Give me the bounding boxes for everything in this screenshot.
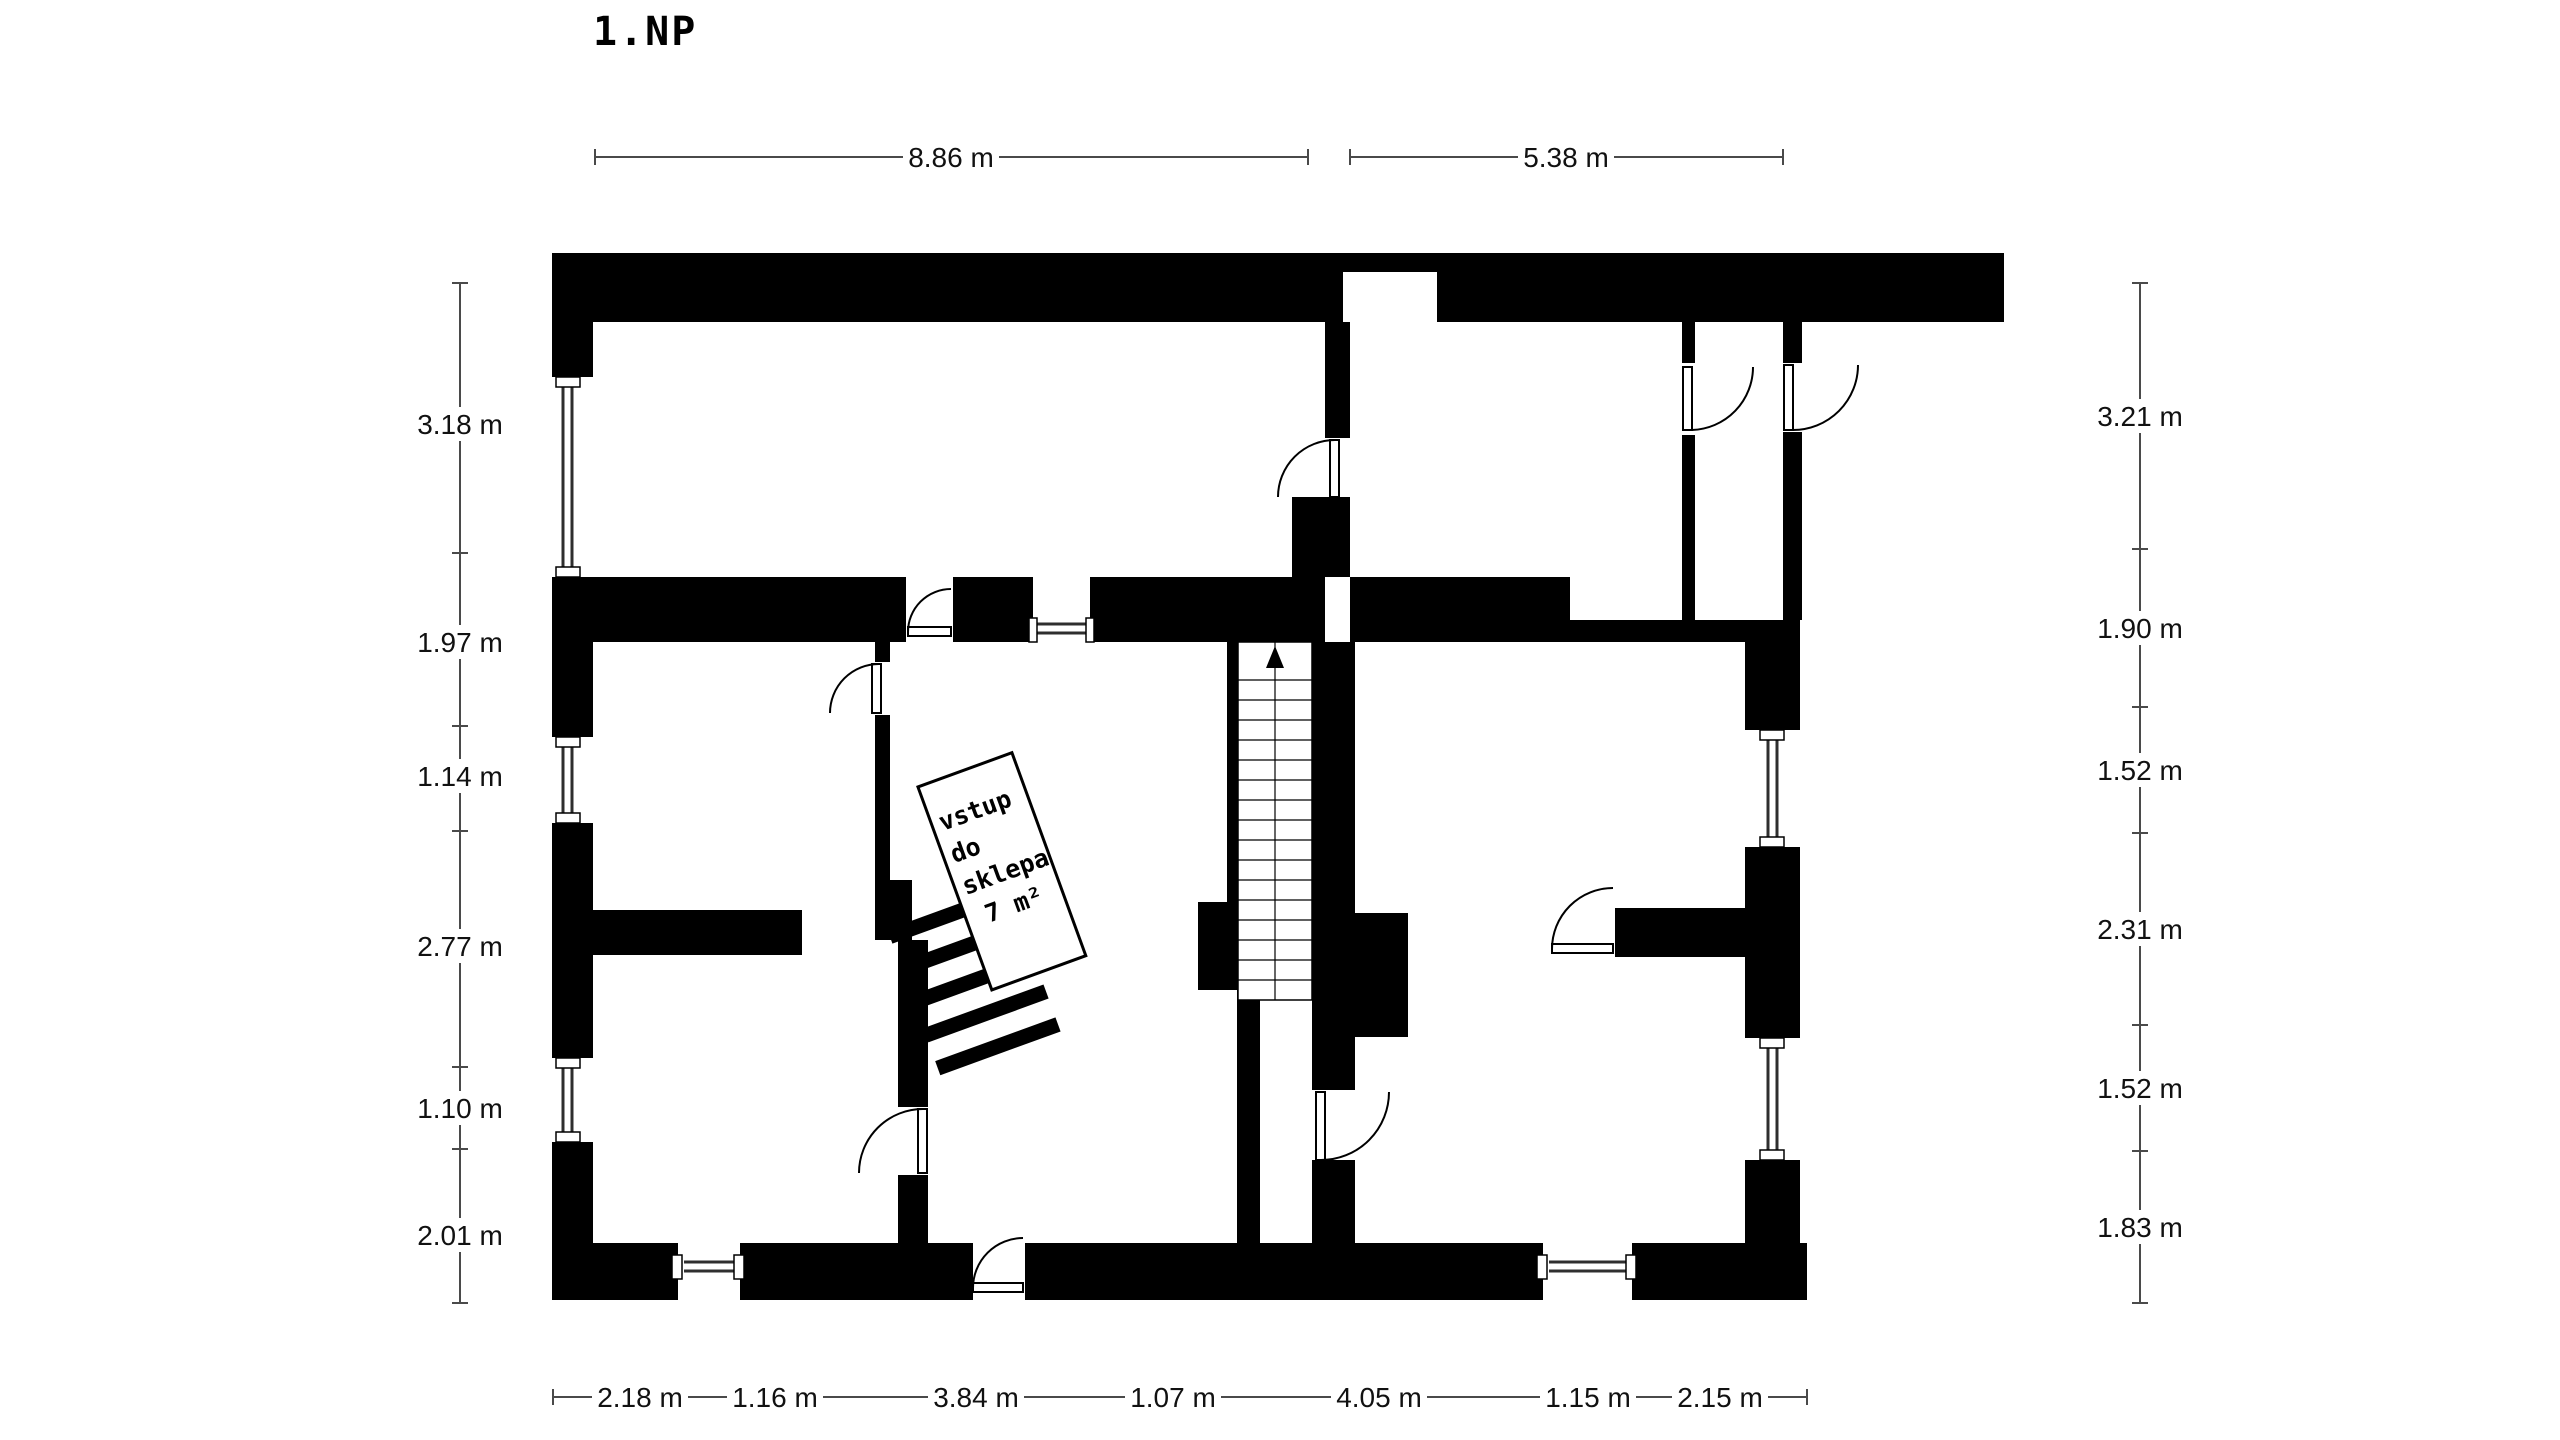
dim-label-bottom-3: 1.07 m [1130, 1382, 1216, 1413]
dim-label-bottom-0: 2.18 m [597, 1382, 683, 1413]
dim-label-bottom-6: 2.15 m [1677, 1382, 1763, 1413]
dim-label-top-0: 8.86 m [908, 142, 994, 173]
dim-label-right-3: 2.31 m [2097, 914, 2183, 945]
dim-label-bottom-4: 4.05 m [1336, 1382, 1422, 1413]
floor-plan-svg: 1.NP [0, 0, 2560, 1440]
dim-label-right-0: 3.21 m [2097, 401, 2183, 432]
dim-label-top-1: 5.38 m [1523, 142, 1609, 173]
dim-label-right-4: 1.52 m [2097, 1073, 2183, 1104]
dim-label-left-1: 1.97 m [417, 627, 503, 658]
dim-label-right-1: 1.90 m [2097, 613, 2183, 644]
dim-label-bottom-5: 1.15 m [1545, 1382, 1631, 1413]
dim-label-left-4: 1.10 m [417, 1093, 503, 1124]
dim-label-left-5: 2.01 m [417, 1220, 503, 1251]
dim-label-bottom-1: 1.16 m [732, 1382, 818, 1413]
dimension-line-bottom: 2.18 m 1.16 m 3.84 m 1.07 m 4.05 m 1.15 … [553, 1380, 1807, 1414]
dim-label-left-0: 3.18 m [417, 409, 503, 440]
dim-label-right-5: 1.83 m [2097, 1212, 2183, 1243]
floor-plan-page: 1.NP [0, 0, 2560, 1440]
dim-label-left-3: 2.77 m [417, 931, 503, 962]
dim-label-left-2: 1.14 m [417, 761, 503, 792]
dim-label-right-2: 1.52 m [2097, 755, 2183, 786]
dim-label-bottom-2: 3.84 m [933, 1382, 1019, 1413]
staircase [1238, 642, 1312, 1000]
page-title: 1.NP [593, 9, 697, 55]
